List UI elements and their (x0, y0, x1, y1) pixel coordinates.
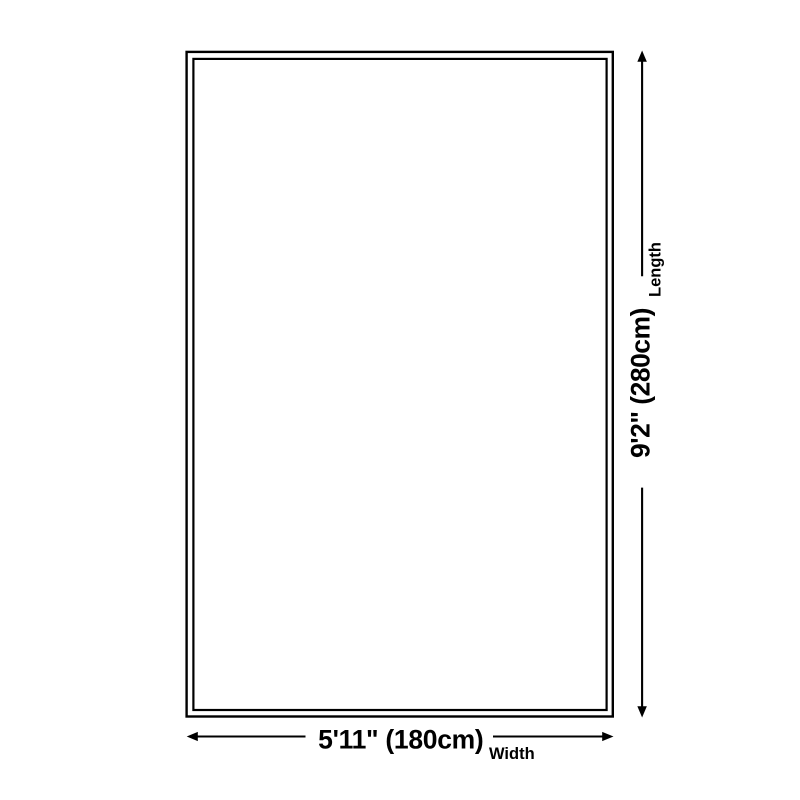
svg-text:5'11" (180cm): 5'11" (180cm) (318, 724, 483, 754)
svg-text:9'2" (280cm): 9'2" (280cm) (625, 308, 655, 458)
svg-text:Width: Width (489, 745, 535, 763)
svg-text:Length: Length (646, 242, 664, 297)
